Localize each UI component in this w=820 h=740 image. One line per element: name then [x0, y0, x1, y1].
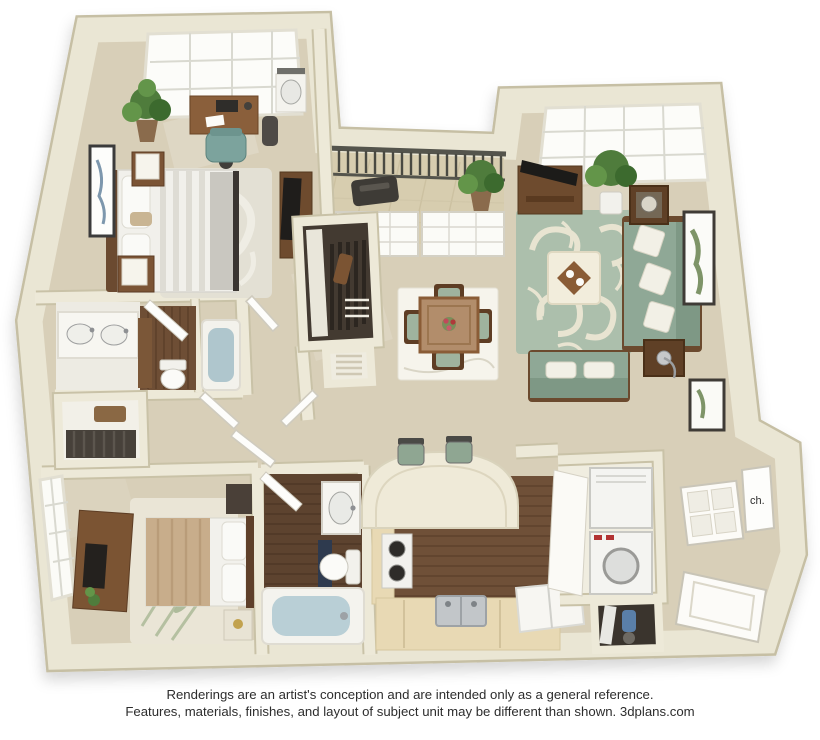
toilet [160, 360, 186, 389]
bar-stool [446, 436, 472, 463]
floor-plan-page: ch. Renderings are an artist's conceptio… [0, 0, 820, 740]
bed-2 [146, 516, 254, 608]
hall-linen-closet [58, 396, 144, 464]
walk-in-closet [298, 218, 378, 346]
corner-vanity-sink [276, 68, 306, 112]
double-sink-vanity [58, 312, 138, 358]
disclaimer-line-2: Features, materials, finishes, and layou… [0, 704, 820, 721]
linen-tower [138, 318, 152, 388]
floor-plan-rendering: ch. [0, 0, 820, 740]
dining-table [420, 298, 478, 352]
wall-art-entry [690, 380, 724, 430]
washer-dryer-stack [590, 468, 652, 594]
kitchen-sink [436, 596, 486, 626]
living-room [516, 104, 714, 402]
vanity-sink-2 [322, 482, 360, 534]
dresser-2-with-tv [73, 510, 134, 612]
range [382, 534, 412, 588]
disclaimer-line-1: Renderings are an artist's conception an… [0, 687, 820, 704]
nightstand-dark [226, 484, 252, 514]
end-table-with-lamp [630, 186, 668, 224]
bar-stool [398, 438, 424, 465]
bathtub-2 [262, 588, 364, 644]
bathtub [202, 320, 240, 390]
floor-plan-svg: ch. [0, 0, 820, 740]
end-table-with-lamp [644, 340, 684, 378]
water-heater-label: ch. [750, 495, 765, 507]
ottoman [548, 252, 600, 304]
disclaimer-text: Renderings are an artist's conception an… [0, 687, 820, 720]
laundry-closet [548, 456, 662, 600]
wall-art [90, 146, 114, 236]
laundry-door [548, 470, 588, 596]
storage-closet [594, 600, 660, 650]
nightstand-with-lamp [132, 152, 164, 186]
wall-art-living [684, 212, 714, 304]
bathroom-2 [260, 472, 364, 644]
water-heater-closet: ch. [742, 466, 774, 532]
coat-closet-door [681, 481, 744, 545]
nightstand-with-lamp [118, 256, 154, 292]
linen-closet-small [326, 348, 372, 384]
dining-area [398, 284, 498, 380]
breakfast-bar [362, 452, 518, 528]
tv-console [518, 160, 582, 214]
bench-with-lamp [224, 610, 252, 640]
balcony-grill [351, 175, 400, 206]
waste-bin [262, 116, 278, 146]
loveseat [528, 350, 630, 402]
